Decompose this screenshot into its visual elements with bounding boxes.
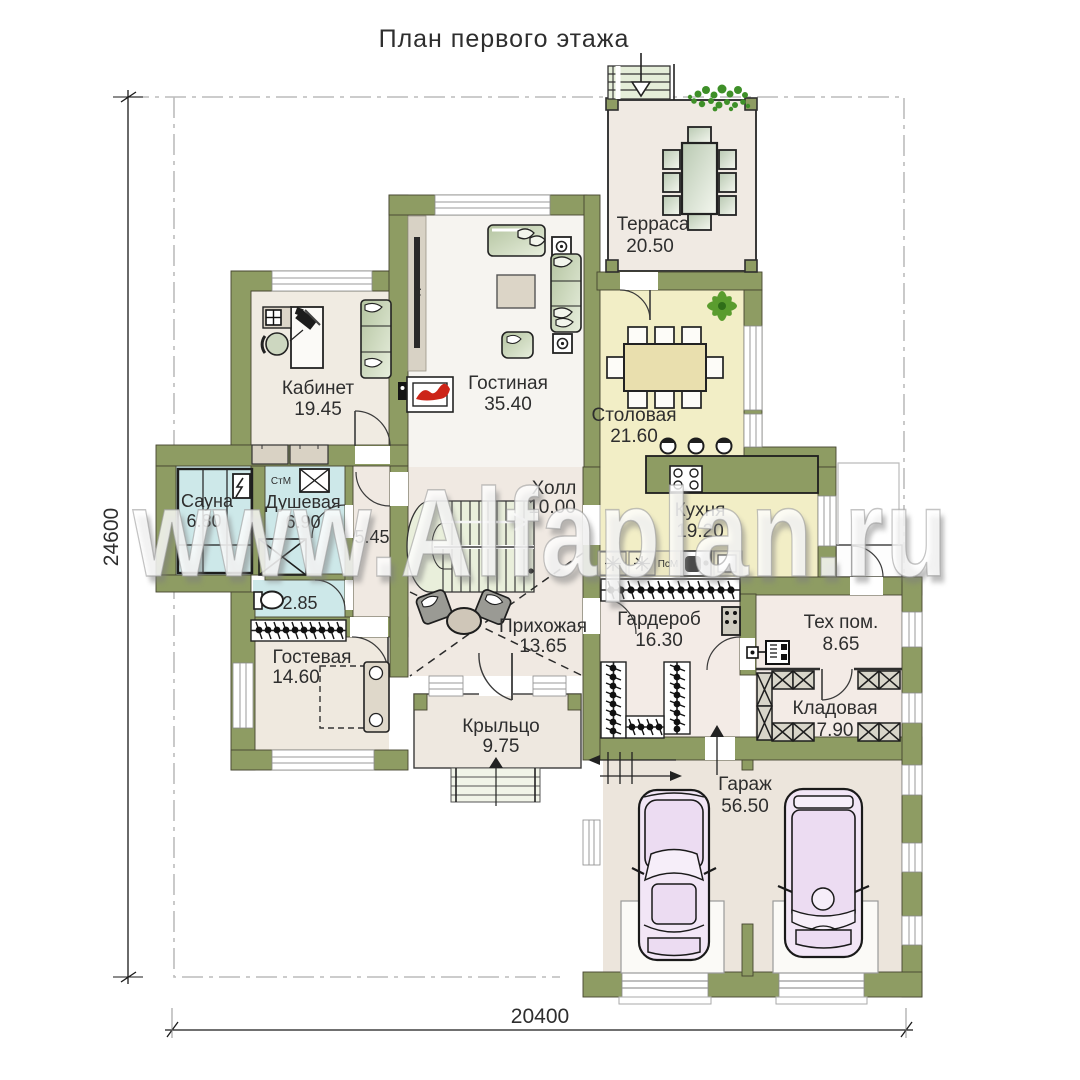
- svg-text:20400: 20400: [511, 1005, 569, 1028]
- svg-text:9.75: 9.75: [483, 736, 520, 757]
- svg-text:Кладовая: Кладовая: [792, 698, 877, 719]
- svg-text:ТV: ТV: [413, 286, 423, 298]
- svg-text:Крыльцо: Крыльцо: [462, 716, 540, 737]
- svg-text:14.60: 14.60: [272, 667, 320, 688]
- svg-text:Кабинет: Кабинет: [282, 378, 355, 399]
- svg-text:Гараж: Гараж: [718, 774, 772, 795]
- svg-text:7.90: 7.90: [817, 720, 854, 741]
- svg-text:13.65: 13.65: [519, 636, 567, 657]
- svg-text:8.65: 8.65: [823, 634, 860, 655]
- svg-text:Гостиная: Гостиная: [468, 373, 548, 394]
- svg-text:35.40: 35.40: [484, 394, 532, 415]
- svg-text:Столовая: Столовая: [592, 405, 677, 426]
- svg-text:Гостевая: Гостевая: [273, 647, 352, 668]
- svg-text:Прихожая: Прихожая: [499, 616, 587, 637]
- svg-text:21.60: 21.60: [610, 426, 658, 447]
- svg-text:16.30: 16.30: [635, 630, 683, 651]
- svg-text:Тех пом.: Тех пом.: [804, 612, 879, 633]
- svg-text:20.50: 20.50: [626, 236, 674, 257]
- svg-text:Терраса: Терраса: [617, 214, 690, 235]
- svg-text:56.50: 56.50: [721, 796, 769, 817]
- svg-text:Гардероб: Гардероб: [617, 609, 701, 630]
- svg-text:План первого этажа: План первого этажа: [379, 25, 630, 53]
- svg-text:24600: 24600: [100, 508, 123, 566]
- svg-text:19.45: 19.45: [294, 399, 342, 420]
